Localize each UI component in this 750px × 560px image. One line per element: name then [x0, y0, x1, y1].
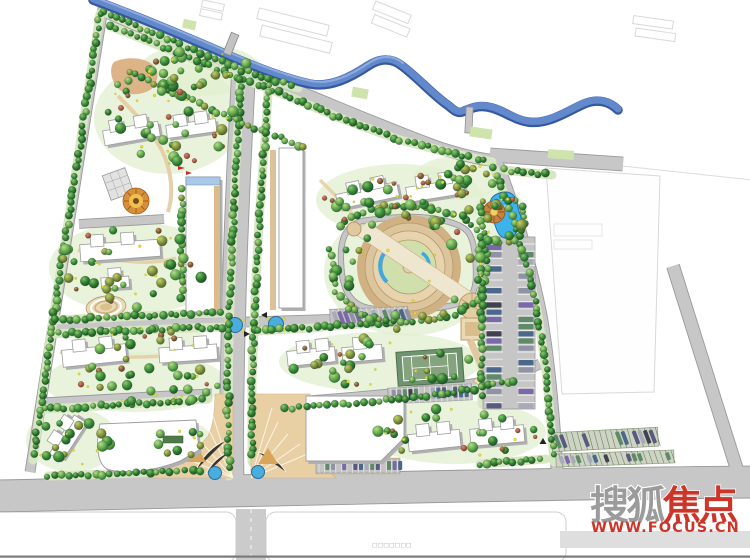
- tree: [168, 328, 175, 335]
- flower-dot: [428, 280, 430, 282]
- tree: [114, 81, 121, 88]
- tree: [31, 450, 38, 457]
- tree: [345, 349, 355, 359]
- tree: [88, 329, 96, 337]
- shrub: [184, 153, 190, 159]
- tree: [44, 352, 52, 360]
- tree: [530, 426, 537, 433]
- tree: [343, 247, 350, 254]
- tree: [474, 227, 480, 233]
- context-building: [368, 1, 415, 37]
- flower-dot: [369, 383, 371, 385]
- tree: [289, 140, 295, 146]
- tree: [180, 324, 187, 331]
- tree: [521, 214, 527, 220]
- tree: [211, 71, 220, 80]
- tree: [320, 353, 329, 362]
- tree: [538, 339, 544, 345]
- tree: [249, 385, 255, 391]
- tree: [254, 259, 260, 265]
- shrub: [511, 197, 516, 202]
- tree: [470, 386, 479, 395]
- tree: [98, 471, 106, 479]
- road-south-continuation: [236, 509, 266, 560]
- tree: [478, 209, 485, 216]
- shrub: [126, 93, 131, 98]
- tree: [223, 384, 231, 392]
- tree: [259, 187, 265, 193]
- shrub: [156, 228, 162, 234]
- tree: [250, 440, 256, 446]
- car: [487, 310, 502, 315]
- tree: [436, 349, 444, 357]
- tree: [128, 30, 134, 36]
- flower-dot: [473, 167, 475, 169]
- tree: [401, 211, 409, 219]
- roof-garden: [163, 436, 183, 443]
- tree: [48, 337, 54, 343]
- tree: [150, 290, 157, 297]
- tree: [288, 82, 295, 89]
- tree: [133, 22, 139, 28]
- context-building: [631, 16, 677, 42]
- tree: [539, 333, 546, 340]
- tree: [86, 73, 92, 79]
- car: [398, 461, 402, 470]
- tree: [180, 201, 186, 207]
- flower-dot: [514, 438, 517, 441]
- tree: [193, 57, 201, 65]
- tree: [383, 185, 393, 195]
- flower-dot: [450, 408, 453, 411]
- tree: [147, 133, 156, 142]
- flower-dot: [98, 263, 100, 265]
- tree: [250, 369, 257, 376]
- flower-dot: [410, 195, 412, 197]
- flower-dot: [396, 195, 399, 198]
- tree: [224, 332, 232, 340]
- tree: [263, 101, 270, 108]
- tree: [32, 429, 40, 437]
- tree: [150, 399, 157, 406]
- tree: [280, 78, 287, 85]
- tree: [71, 179, 78, 186]
- flower-dot: [174, 349, 176, 351]
- tree: [202, 388, 210, 396]
- tree: [478, 315, 486, 323]
- tree: [169, 385, 177, 393]
- tree: [81, 404, 89, 412]
- tree: [71, 173, 77, 179]
- flower-dot: [402, 438, 405, 441]
- tree: [225, 413, 231, 419]
- flower-dot: [168, 162, 170, 164]
- tree: [275, 87, 284, 96]
- tree: [85, 85, 93, 93]
- tree: [255, 327, 262, 334]
- tree: [235, 137, 242, 144]
- tree: [324, 109, 331, 116]
- flower-dot: [136, 100, 138, 102]
- tree: [388, 396, 395, 403]
- tree: [218, 324, 226, 332]
- tree: [180, 310, 187, 317]
- tree: [57, 270, 63, 276]
- shrub: [177, 89, 183, 95]
- flower-dot: [193, 436, 196, 439]
- car: [519, 367, 534, 372]
- flower-dot: [167, 150, 170, 153]
- tree: [518, 246, 526, 254]
- shrub: [500, 447, 505, 452]
- tree: [353, 400, 360, 407]
- tree: [276, 324, 284, 332]
- shrub: [85, 233, 91, 239]
- watermark: 搜狐焦点 WWW.FOCUS.CN: [590, 484, 741, 536]
- tree: [480, 223, 486, 229]
- tree: [246, 78, 254, 86]
- tree: [347, 185, 358, 196]
- tree: [451, 296, 459, 304]
- tree: [262, 137, 268, 143]
- tree: [474, 276, 482, 284]
- tree: [60, 406, 67, 413]
- tree: [59, 255, 67, 263]
- tree: [58, 471, 66, 479]
- tree: [95, 344, 105, 354]
- shrub: [354, 382, 359, 387]
- tree: [345, 306, 352, 313]
- sunflower-mandala: [123, 188, 149, 214]
- tree: [245, 123, 251, 129]
- tree: [204, 52, 212, 60]
- tree: [189, 96, 196, 103]
- tree: [79, 129, 86, 136]
- tree: [431, 145, 439, 153]
- tree: [451, 149, 459, 157]
- car: [519, 389, 534, 394]
- shrub: [78, 381, 84, 387]
- flower-dot: [363, 253, 365, 255]
- tree: [488, 436, 498, 446]
- tree: [551, 452, 557, 458]
- context-building: [253, 8, 336, 53]
- tree: [157, 236, 167, 246]
- tree: [225, 357, 231, 363]
- tree: [113, 26, 119, 32]
- tree: [208, 309, 216, 317]
- tree: [65, 221, 73, 229]
- tree: [173, 121, 179, 127]
- tree: [95, 315, 101, 321]
- tree: [172, 156, 183, 167]
- tree: [134, 34, 140, 40]
- tree: [317, 105, 325, 113]
- shrub: [515, 428, 520, 433]
- tree: [115, 116, 122, 123]
- tree: [458, 305, 467, 314]
- tree: [356, 122, 363, 129]
- flower-dot: [172, 402, 174, 404]
- shrub: [302, 346, 307, 351]
- tree: [349, 118, 357, 126]
- car: [487, 403, 502, 408]
- tree: [544, 379, 551, 386]
- flower-dot: [171, 58, 174, 61]
- shrub: [533, 435, 537, 439]
- tree: [88, 258, 96, 266]
- tree: [180, 266, 187, 273]
- tree: [437, 373, 448, 384]
- shrub: [143, 334, 147, 338]
- tree: [465, 152, 473, 160]
- tree: [251, 288, 259, 296]
- tree: [263, 117, 269, 123]
- shrub: [205, 382, 209, 386]
- tree: [228, 246, 235, 253]
- tree: [115, 123, 126, 134]
- tree: [435, 179, 446, 190]
- flower-dot: [425, 376, 427, 378]
- tree: [176, 398, 183, 405]
- tree: [112, 285, 118, 291]
- flower-dot: [434, 254, 436, 256]
- tree: [68, 199, 75, 206]
- tree: [467, 442, 478, 453]
- tree: [78, 471, 84, 477]
- tree: [299, 324, 305, 330]
- tree: [78, 135, 86, 143]
- tree: [346, 402, 352, 408]
- flower-dot: [102, 286, 104, 288]
- flower-dot: [227, 73, 229, 75]
- flower-dot: [155, 275, 158, 278]
- tree: [477, 374, 485, 382]
- tree: [248, 431, 255, 438]
- tree: [271, 78, 279, 86]
- tree: [479, 345, 487, 353]
- tree: [79, 123, 85, 129]
- shrub: [119, 366, 125, 372]
- tree: [120, 282, 126, 288]
- tree: [523, 261, 529, 267]
- car: [393, 461, 397, 470]
- tree: [547, 414, 555, 422]
- tree: [236, 94, 244, 102]
- flower-dot: [157, 238, 159, 240]
- tree: [133, 469, 140, 476]
- tree: [248, 346, 256, 354]
- tree: [195, 365, 205, 375]
- tree: [348, 213, 355, 220]
- tree: [132, 71, 138, 77]
- shrub: [322, 196, 327, 201]
- tree: [177, 218, 186, 227]
- tree: [165, 45, 172, 52]
- tree: [110, 402, 116, 408]
- tree: [73, 472, 79, 478]
- tree: [145, 77, 152, 84]
- flower-dot: [121, 400, 123, 402]
- tree: [225, 347, 232, 354]
- car: [487, 367, 502, 372]
- road: [79, 219, 164, 224]
- car: [519, 403, 534, 408]
- tree: [290, 324, 299, 333]
- tree: [179, 278, 186, 285]
- tree: [257, 223, 264, 230]
- tree: [66, 472, 73, 479]
- tree: [42, 422, 51, 431]
- shrub: [392, 203, 398, 209]
- tree: [120, 470, 126, 476]
- tree: [250, 355, 256, 361]
- tree: [364, 235, 371, 242]
- parking-strip: [556, 450, 675, 467]
- tree: [72, 163, 80, 171]
- tree: [90, 403, 96, 409]
- tree: [483, 171, 490, 178]
- flower-dot: [479, 165, 482, 168]
- site-plan-rendering: □□□□□□□ 搜狐焦点 WWW.FOCUS.CN: [0, 0, 750, 560]
- tree: [256, 201, 264, 209]
- tree: [178, 68, 185, 75]
- tree: [144, 363, 154, 373]
- tree: [260, 173, 266, 179]
- tree: [395, 138, 402, 145]
- tree: [160, 56, 170, 66]
- tree: [505, 231, 514, 240]
- tree: [348, 322, 355, 329]
- flower-dot: [95, 262, 97, 264]
- tree: [336, 222, 344, 230]
- car: [519, 346, 534, 351]
- tree: [360, 398, 368, 406]
- tree: [232, 163, 240, 171]
- tree: [316, 402, 322, 408]
- flower-dot: [412, 299, 415, 302]
- flower-dot: [479, 275, 481, 277]
- tree: [196, 82, 204, 90]
- tree: [409, 319, 415, 325]
- tree: [478, 362, 484, 368]
- tree: [435, 207, 441, 213]
- tree: [173, 312, 179, 318]
- tree: [258, 180, 264, 186]
- tree: [226, 304, 232, 310]
- flower-dot: [168, 100, 170, 102]
- tree: [287, 95, 294, 102]
- tree: [489, 164, 496, 171]
- flower-dot: [362, 250, 364, 252]
- tree: [81, 99, 89, 107]
- car: [487, 317, 502, 322]
- flower-dot: [170, 237, 172, 239]
- tree: [399, 447, 405, 453]
- tree: [425, 143, 431, 149]
- tree: [344, 364, 353, 373]
- tree: [42, 451, 51, 460]
- flower-dot: [75, 277, 77, 279]
- flower-dot: [148, 74, 150, 76]
- tree: [255, 239, 262, 246]
- tree: [123, 312, 131, 320]
- flower-dot: [196, 375, 198, 377]
- tree: [478, 323, 486, 331]
- tree: [119, 16, 126, 23]
- tree: [187, 395, 197, 405]
- flower-dot: [374, 368, 376, 370]
- tree: [393, 415, 403, 425]
- tree: [335, 197, 344, 206]
- tree: [422, 393, 430, 401]
- tree: [201, 103, 208, 110]
- tree: [248, 397, 256, 405]
- tree: [173, 446, 182, 455]
- tree: [80, 276, 90, 286]
- tree: [231, 62, 239, 70]
- tree: [171, 141, 181, 151]
- tree: [105, 293, 114, 302]
- tree: [464, 205, 473, 214]
- tree: [160, 81, 166, 87]
- tree: [481, 157, 487, 163]
- tree: [266, 82, 272, 88]
- shrub: [418, 173, 424, 179]
- tree: [57, 262, 64, 269]
- shrub: [461, 445, 467, 451]
- tree: [186, 324, 192, 330]
- tree: [230, 260, 236, 266]
- tree: [444, 170, 452, 178]
- tree: [383, 317, 390, 324]
- tree: [432, 391, 438, 397]
- tree: [479, 392, 486, 399]
- planter: [252, 466, 265, 479]
- tree: [323, 401, 331, 409]
- tree: [418, 312, 426, 320]
- flower-dot: [479, 262, 482, 265]
- tree: [103, 328, 110, 335]
- flower-dot: [185, 99, 187, 101]
- tree: [114, 471, 120, 477]
- tree: [427, 205, 436, 214]
- tree: [547, 422, 553, 428]
- tree: [56, 420, 62, 426]
- tree: [451, 374, 457, 380]
- tree: [350, 259, 356, 265]
- tree: [540, 351, 548, 359]
- tree: [159, 69, 168, 78]
- shrub: [338, 352, 342, 356]
- tree: [98, 11, 104, 17]
- tree: [164, 450, 171, 457]
- tree: [47, 330, 54, 337]
- tree: [509, 459, 516, 466]
- tree: [544, 366, 550, 372]
- flower-dot: [386, 249, 389, 252]
- car: [519, 317, 534, 322]
- tree: [247, 450, 255, 458]
- tree: [391, 311, 400, 320]
- tree: [234, 150, 241, 157]
- flower-dot: [487, 231, 490, 234]
- tree: [233, 116, 239, 122]
- tree: [125, 339, 135, 349]
- tree: [550, 442, 557, 449]
- tree: [121, 28, 127, 34]
- tree: [229, 211, 237, 219]
